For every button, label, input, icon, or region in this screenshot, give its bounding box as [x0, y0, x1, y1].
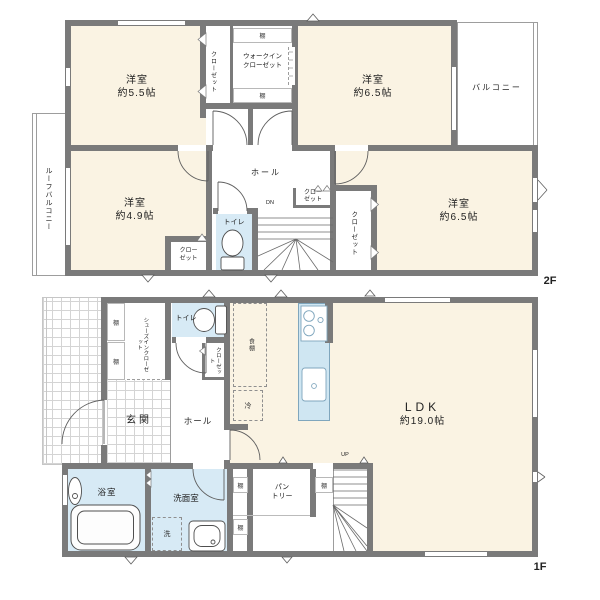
room-label-ldk: LDK 約19.0帖	[365, 397, 480, 431]
wall-segment	[213, 208, 218, 214]
label-walk-in-closet: ウォークイン クローゼット	[233, 50, 292, 74]
strip1-shelf-top: 棚	[233, 477, 248, 493]
casement-window-marks	[538, 180, 547, 482]
wic-shelf-bottom: 棚	[233, 88, 292, 103]
label-toilet-2f: トイレ	[216, 218, 252, 228]
washer-label: 洗	[164, 529, 171, 539]
wall-segment	[532, 482, 538, 557]
shelf-label: 棚	[237, 523, 243, 532]
wall-segment	[293, 205, 330, 208]
window	[451, 67, 457, 130]
f1-stairs-floor	[333, 469, 367, 551]
shoes-shelf-bottom: 棚	[107, 342, 125, 380]
strip2-shelf: 棚	[315, 477, 333, 493]
wall-segment	[224, 297, 230, 430]
wall-segment	[248, 109, 253, 145]
wall-segment	[206, 337, 230, 343]
window	[532, 178, 538, 202]
shoes-shelf-top: 棚	[107, 303, 125, 341]
wall-segment	[165, 236, 206, 242]
label-bath: 浴室	[83, 486, 131, 499]
approach-inner-line	[46, 297, 47, 463]
room-name: 洋室	[124, 197, 146, 211]
wall-segment	[325, 297, 333, 343]
wall-segment	[224, 463, 313, 469]
wall-segment	[532, 297, 538, 350]
room-name: LDK	[405, 399, 440, 415]
label-closet-2f-left: クローゼット	[205, 36, 219, 108]
wall-segment	[145, 469, 151, 551]
window	[532, 350, 538, 417]
wic-shelf-top: 棚	[233, 28, 292, 43]
closet-line1: クロー	[304, 190, 322, 197]
label-roof-balcony: ルーフバルコニー	[40, 140, 56, 258]
room-label-bedroom-65b: 洋室 約6.5帖	[400, 194, 518, 228]
window	[532, 210, 538, 232]
wall-segment	[224, 424, 248, 430]
room-size: 約6.5帖	[440, 211, 479, 225]
wall-segment	[202, 377, 224, 380]
closet-line2: ゼット	[179, 255, 197, 263]
wall-segment	[101, 297, 385, 303]
pantry-shelf-line	[233, 515, 310, 516]
wall-segment	[532, 417, 538, 472]
stairs1-edge-line	[333, 469, 334, 551]
room-label-bedroom-49: 洋室 約4.9帖	[80, 193, 190, 227]
roof-balcony-inner-line	[36, 113, 37, 276]
room-name: 洋室	[126, 74, 148, 88]
shelf-label: 棚	[259, 31, 265, 40]
wall-segment	[62, 463, 193, 469]
label-toilet-1f: トイレ	[170, 314, 202, 324]
wic-line2: クローゼット	[243, 62, 282, 71]
strip1-shelf-bottom: 棚	[233, 519, 248, 535]
wall-segment	[292, 145, 335, 151]
label-closet-1f: クローゼット	[206, 345, 223, 376]
label-hall-2f: ホール	[234, 167, 298, 179]
label-closet-2f-right: クローゼット	[347, 202, 359, 264]
label-stairs-up: UP	[334, 451, 356, 460]
wall-segment	[172, 337, 176, 343]
label-closet-hall: クロー ゼット	[296, 189, 330, 205]
wall-segment	[65, 270, 538, 276]
cupboard-space: 食棚	[233, 303, 267, 387]
label-balcony: バルコニー	[458, 82, 536, 94]
entrance-approach-tiles	[42, 297, 103, 465]
window	[385, 297, 450, 303]
refrigerator-label: 冷	[245, 401, 252, 411]
room-label-bedroom-55: 洋室 約5.5帖	[82, 70, 192, 104]
washer-space: 洗	[152, 517, 182, 551]
wic-line1: ウォークイン	[243, 53, 282, 62]
wall-segment	[292, 26, 298, 145]
entrance-step-line	[170, 380, 171, 463]
closet-line2: ゼット	[304, 197, 322, 204]
room-size: 約6.5帖	[354, 87, 393, 101]
floor-label-2f: 2F	[536, 273, 564, 289]
room-name: 洋室	[448, 198, 470, 212]
window	[118, 20, 185, 26]
pantry-line1: パン	[275, 483, 289, 492]
label-stairs-down: DN	[261, 200, 279, 208]
shelf-label: 棚	[321, 481, 327, 490]
pantry-line2: トリー	[272, 492, 293, 501]
wall-segment	[206, 151, 212, 270]
floor-label-1f: 1F	[526, 559, 554, 575]
room-label-bedroom-65a: 洋室 約6.5帖	[318, 70, 428, 104]
f1-ldk-floor-lower	[373, 463, 532, 551]
wall-segment	[367, 463, 373, 551]
room-size: 約19.0帖	[400, 415, 445, 429]
shelf-label: 棚	[113, 318, 119, 327]
window	[65, 68, 71, 86]
label-shoes-closet: シューズインクローゼット	[129, 315, 155, 373]
window	[532, 472, 538, 482]
shelf-label: 棚	[237, 481, 243, 490]
room-size: 約4.9帖	[116, 210, 155, 224]
f1-bath-floor	[68, 469, 145, 551]
wall-segment	[450, 297, 538, 303]
label-washroom: 洗面室	[158, 492, 214, 505]
wall-segment	[202, 343, 205, 377]
label-closet-49: クロー ゼット	[171, 245, 206, 265]
window	[425, 551, 487, 557]
f1-ldk-floor-upper	[230, 303, 532, 463]
room-size: 約5.5帖	[118, 87, 157, 101]
label-pantry: パン トリー	[256, 480, 308, 504]
wall-segment	[224, 460, 230, 469]
label-entrance: 玄関	[108, 413, 170, 429]
closet-line1: クロー	[179, 247, 197, 255]
wall-segment	[330, 151, 336, 270]
wall-segment	[333, 463, 367, 469]
cupboard-label: 食棚	[247, 338, 254, 352]
window	[65, 168, 71, 245]
room-name: 洋室	[362, 74, 384, 88]
shelf-label: 棚	[113, 357, 119, 366]
wall-segment	[65, 145, 178, 151]
refrigerator-space: 冷	[233, 390, 263, 421]
label-hall-1f: ホール	[172, 415, 224, 429]
wall-segment	[62, 551, 425, 557]
shelf-label: 棚	[259, 91, 265, 100]
wall-segment	[487, 551, 538, 557]
floor-plan: 食棚 冷 洗 棚 棚 棚 棚 棚 棚 棚	[0, 0, 600, 600]
wall-segment	[252, 208, 258, 270]
wall-segment	[368, 145, 538, 151]
wall-segment	[371, 191, 377, 270]
window	[62, 475, 68, 505]
